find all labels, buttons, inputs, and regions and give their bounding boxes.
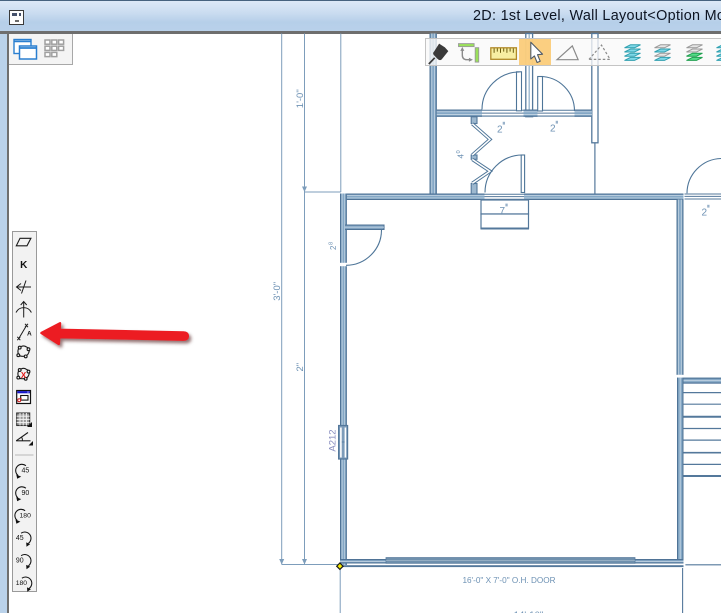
svg-text:180: 180 (16, 580, 28, 587)
svg-text:K: K (20, 260, 28, 271)
svg-text:90: 90 (16, 558, 24, 565)
svg-text:2": 2" (295, 363, 306, 372)
svg-text:45: 45 (22, 468, 30, 475)
svg-text:2: 2 (702, 207, 708, 218)
svg-text:0: 0 (456, 150, 462, 153)
svg-text:7: 7 (500, 206, 506, 217)
svg-text:3'-0": 3'-0" (272, 282, 283, 301)
svg-text:8: 8 (328, 242, 334, 245)
svg-text:2: 2 (550, 123, 556, 134)
svg-text:1'-0": 1'-0" (295, 89, 306, 108)
svg-text:45: 45 (16, 535, 24, 542)
svg-text:A212: A212 (327, 429, 338, 451)
svg-text:180: 180 (20, 513, 32, 520)
svg-text:16'-0" X 7'-0" O.H. DOOR: 16'-0" X 7'-0" O.H. DOOR (462, 576, 555, 585)
svg-text:2: 2 (497, 124, 503, 135)
svg-text:90: 90 (22, 490, 30, 497)
svg-text:X: X (21, 371, 27, 380)
